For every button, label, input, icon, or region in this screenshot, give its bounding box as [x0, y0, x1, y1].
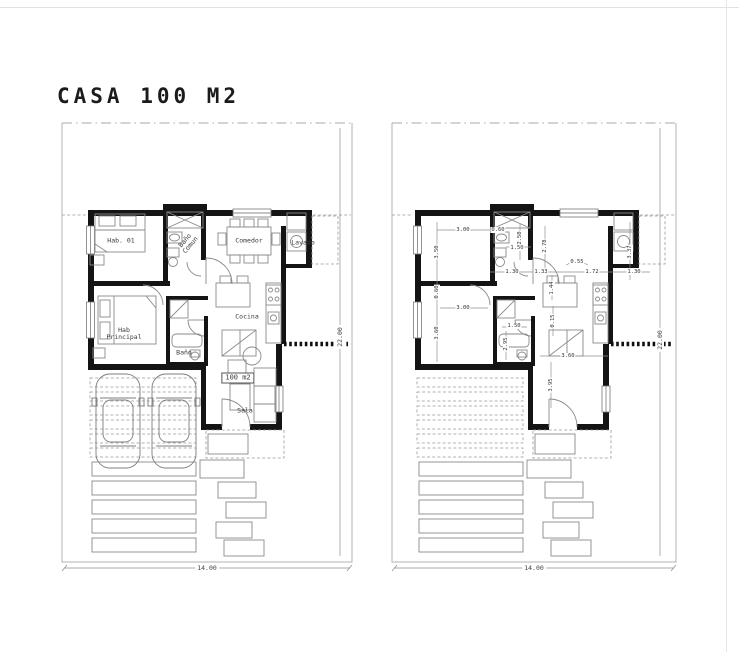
left-floor-plan — [62, 128, 352, 571]
dining-set — [218, 219, 280, 263]
floor-plan-canvas — [0, 0, 739, 652]
sofa-set — [228, 347, 276, 422]
drawing-sheet: { "title": "CASA 100 M2", "left_plan": {… — [0, 0, 739, 652]
bed-hab-01 — [90, 214, 145, 265]
cars — [92, 374, 200, 468]
bed-hab-principal — [93, 296, 156, 358]
dimension-lines — [437, 222, 650, 408]
right-floor-plan — [392, 128, 676, 571]
